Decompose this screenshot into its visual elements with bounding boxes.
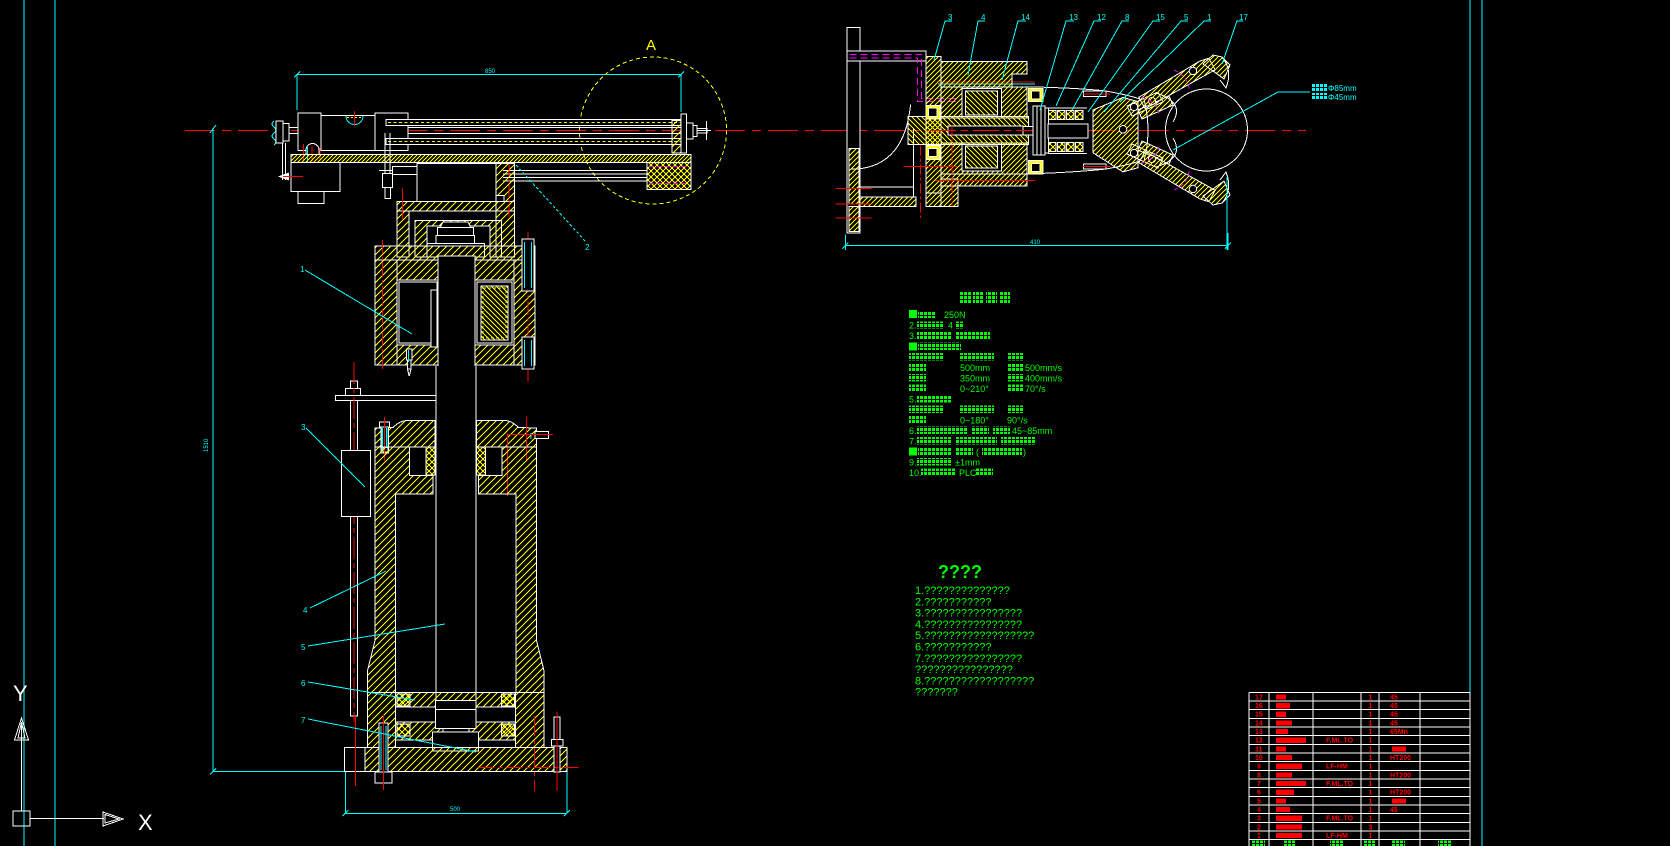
svg-text:2.: 2. (909, 321, 917, 331)
svg-text:HT200: HT200 (1390, 755, 1411, 762)
svg-text:HT200: HT200 (1390, 790, 1411, 797)
svg-text:350mm: 350mm (960, 374, 990, 384)
svg-text:1: 1 (1369, 755, 1373, 762)
svg-text:1: 1 (1369, 781, 1373, 788)
svg-text:0~180°: 0~180° (960, 416, 989, 426)
svg-text:7: 7 (301, 716, 306, 725)
svg-text:(: ( (976, 447, 979, 457)
svg-text:A: A (646, 37, 656, 54)
svg-text:2.???????????: 2.??????????? (915, 596, 991, 608)
svg-text:5: 5 (1257, 798, 1261, 805)
svg-text:1: 1 (1369, 694, 1373, 701)
svg-text:400mm/s: 400mm/s (1025, 374, 1063, 384)
svg-text:250N: 250N (944, 310, 966, 320)
svg-text:X: X (138, 810, 153, 835)
svg-text:F.ML.TO: F.ML.TO (1326, 816, 1354, 823)
svg-text:6.???????????: 6.??????????? (915, 642, 991, 654)
svg-text:4.????????????????: 4.???????????????? (915, 619, 1022, 631)
svg-text:5.: 5. (909, 395, 917, 405)
svg-text:1: 1 (1369, 790, 1373, 797)
svg-text:1: 1 (1369, 833, 1373, 840)
svg-text:45~85mm: 45~85mm (1012, 426, 1052, 436)
svg-text:7.: 7. (909, 437, 917, 447)
svg-text:3: 3 (301, 423, 306, 432)
svg-text:5: 5 (301, 643, 306, 652)
svg-text:15: 15 (1255, 712, 1263, 719)
svg-text:850: 850 (485, 69, 496, 75)
svg-text:13: 13 (1255, 729, 1263, 736)
svg-text:LF-HM: LF-HM (1326, 764, 1348, 771)
svg-text:45: 45 (1390, 694, 1398, 701)
svg-text:): ) (1023, 447, 1026, 457)
svg-text:500mm/s: 500mm/s (1025, 363, 1063, 373)
svg-text:1.??????????????: 1.?????????????? (915, 585, 1010, 597)
svg-text:45: 45 (1390, 807, 1398, 814)
svg-text:????: ???? (938, 562, 982, 582)
svg-text:3.????????????????: 3.???????????????? (915, 608, 1022, 620)
svg-text:???????: ??????? (915, 687, 958, 699)
svg-text:2: 2 (1257, 824, 1261, 831)
svg-text:HT200: HT200 (1390, 772, 1411, 779)
svg-text:1: 1 (1369, 729, 1373, 736)
svg-text:45: 45 (1390, 712, 1398, 719)
svg-text:45: 45 (1390, 703, 1398, 710)
svg-text:F.ML.TO: F.ML.TO (1326, 738, 1354, 745)
svg-text:14: 14 (1255, 720, 1263, 727)
svg-text:11: 11 (1255, 746, 1263, 753)
svg-text:Φ45mm: Φ45mm (1328, 93, 1357, 102)
svg-text:1: 1 (300, 265, 305, 274)
svg-text:7.????????????????: 7.???????????????? (915, 653, 1022, 665)
svg-text:4: 4 (303, 606, 308, 615)
svg-text:10: 10 (1255, 755, 1263, 762)
svg-text:1: 1 (1369, 720, 1373, 727)
svg-text:9: 9 (1257, 764, 1261, 771)
svg-text:±1mm: ±1mm (955, 458, 980, 468)
svg-text:1: 1 (1369, 712, 1373, 719)
svg-text:3: 3 (1369, 824, 1373, 831)
svg-text:17: 17 (1255, 694, 1263, 701)
svg-text:70°/s: 70°/s (1025, 384, 1046, 394)
svg-text:500: 500 (450, 807, 461, 813)
svg-text:45: 45 (1390, 720, 1398, 727)
svg-text:LF-HM: LF-HM (1326, 833, 1348, 840)
svg-text:6: 6 (301, 679, 306, 688)
svg-text:8: 8 (1257, 772, 1261, 779)
svg-text:6: 6 (1257, 790, 1261, 797)
svg-text:4: 4 (1257, 807, 1261, 814)
svg-text:Y: Y (13, 681, 28, 706)
svg-text:1: 1 (1369, 746, 1373, 753)
svg-text:2: 2 (585, 243, 590, 252)
svg-text:1: 1 (1369, 798, 1373, 805)
svg-text:65Mn: 65Mn (1390, 729, 1408, 736)
svg-text:1: 1 (1369, 738, 1373, 745)
svg-text:9.: 9. (909, 458, 917, 468)
svg-text:1: 1 (1369, 703, 1373, 710)
svg-text:90°/s: 90°/s (1007, 416, 1028, 426)
svg-text:1: 1 (1369, 807, 1373, 814)
svg-text:Φ85mm: Φ85mm (1328, 84, 1357, 93)
svg-text:16: 16 (1255, 703, 1263, 710)
svg-text:3.: 3. (909, 331, 917, 341)
svg-text:5.??????????????????: 5.?????????????????? (915, 630, 1034, 642)
svg-text:3: 3 (1257, 816, 1261, 823)
svg-text:500mm: 500mm (960, 363, 990, 373)
svg-text:F.ML.TO: F.ML.TO (1326, 781, 1354, 788)
svg-text:7: 7 (1257, 781, 1261, 788)
svg-text:0~210°: 0~210° (960, 384, 989, 394)
svg-text:1: 1 (1369, 816, 1373, 823)
svg-text:6.: 6. (909, 426, 917, 436)
svg-text:410: 410 (1030, 240, 1041, 246)
svg-text:1: 1 (1257, 833, 1261, 840)
svg-text:1: 1 (1369, 764, 1373, 771)
svg-text:1510: 1510 (204, 438, 210, 452)
svg-text:10.: 10. (909, 468, 922, 478)
svg-text:????????????????: ???????????????? (915, 664, 1013, 676)
svg-text:1: 1 (1369, 772, 1373, 779)
svg-text:4: 4 (948, 321, 953, 331)
svg-text:8.??????????????????: 8.?????????????????? (915, 675, 1034, 687)
svg-text:PLC: PLC (959, 468, 977, 478)
svg-text:12: 12 (1255, 738, 1263, 745)
